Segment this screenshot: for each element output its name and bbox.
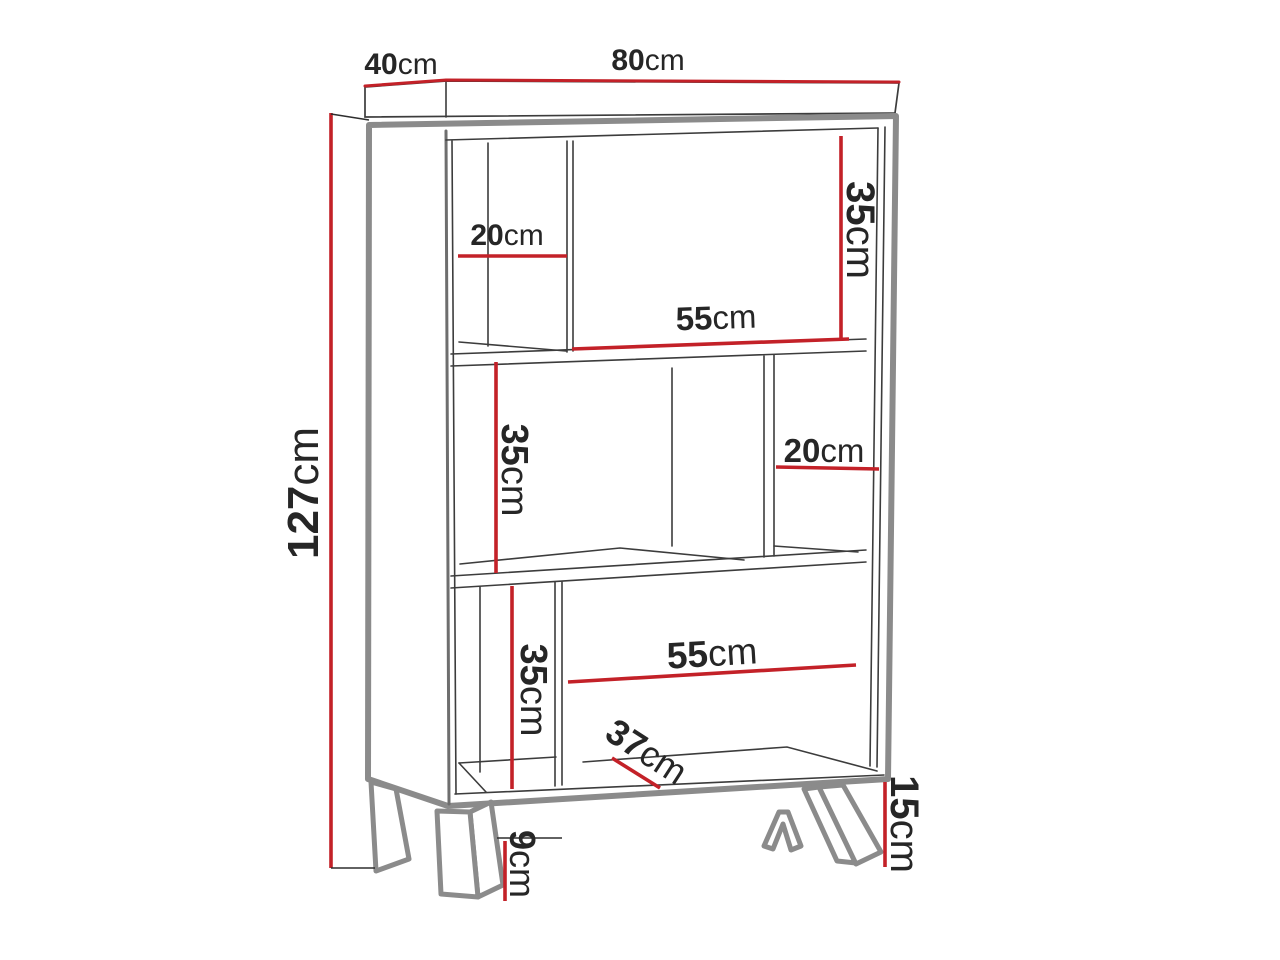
leg-front-left [437,811,478,897]
dim-label-top-left-compartment-width: 20cm [470,219,543,252]
dim-label-top-width: 80cm [611,44,684,77]
dim-label-bottom-section-height: 35cm [512,644,554,737]
dim-label-leg-plinth-height: 15cm [882,775,926,873]
dim-label-top-section-height: 35cm [838,181,882,279]
dim-label-middle-right-compartment-width: 20cm [784,432,865,469]
dim-label-top-shelf-width: 55cm [675,297,757,337]
leg-back-right [764,812,801,850]
furniture-dimension-diagram: 40cm 80cm 127cm 20cm 35cm 55cm 35cm 20cm… [0,0,1280,960]
cabinet-top-face [365,81,899,117]
dim-label-total-height: 127cm [279,427,328,559]
dim-label-bottom-shelf-width: 55cm [666,630,759,676]
dim-tick-height-top [331,114,369,120]
leg-back-left [371,782,409,871]
diagram-canvas: 40cm 80cm 127cm 20cm 35cm 55cm 35cm 20cm… [0,0,1280,960]
dim-label-front-leg-height: 9cm [503,830,544,898]
dim-label-top-depth: 40cm [364,48,437,81]
dim-label-middle-section-height: 35cm [493,424,535,517]
top-panel-surface [365,81,899,117]
